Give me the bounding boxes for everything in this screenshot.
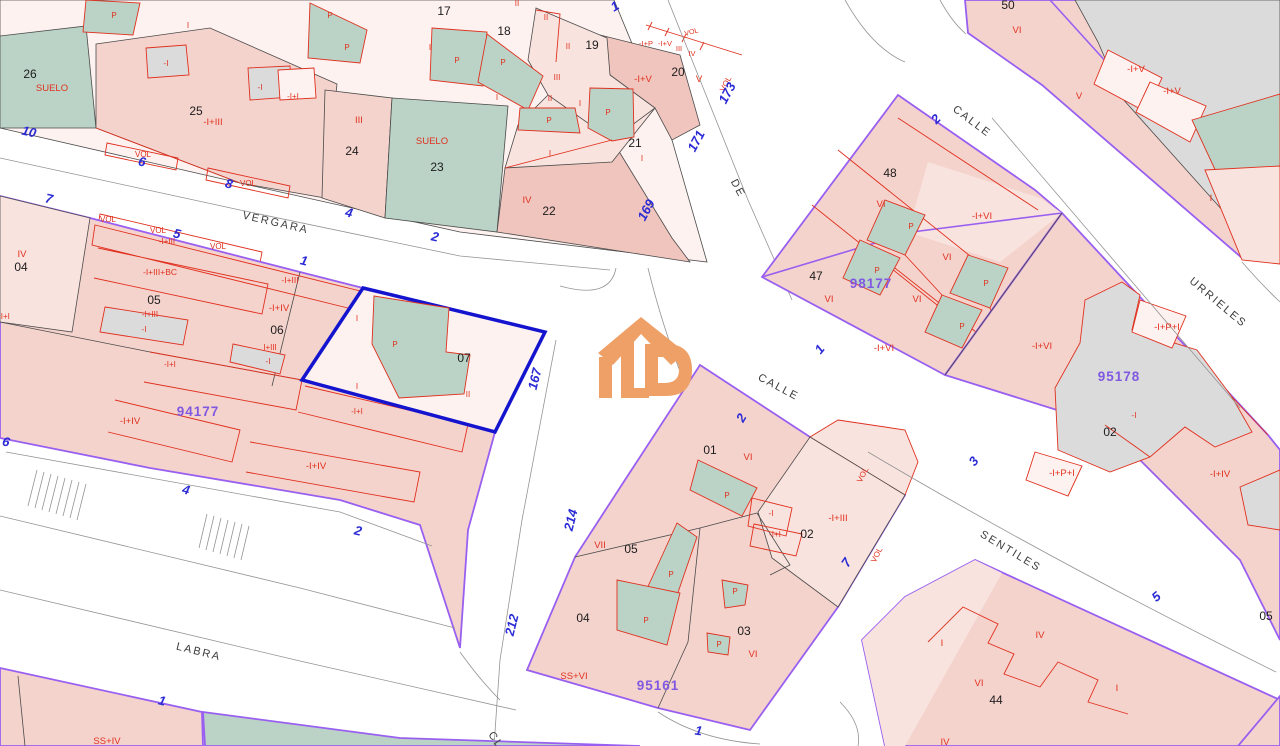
construction-label: -I+P [639,39,653,48]
construction-label: P [392,340,397,349]
construction-label: IV [941,737,951,746]
cadastral-map-viewport[interactable]: SUELO-I-I-I+I-I+IIIIIISUELOIVIPPPIIIIIII… [0,0,1280,746]
construction-label: VI [749,649,758,660]
construction-label: P [732,587,737,596]
construction-label: -I+I [0,312,10,321]
construction-label: I [356,382,358,391]
construction-label: -I+I [769,530,781,539]
construction-label: I [941,638,944,649]
construction-label: -I+III [828,513,847,524]
construction-label: P [716,640,721,649]
block-code-label: 95178 [1098,369,1141,384]
parcel-number-label: 05 [147,293,161,307]
construction-label: VI [975,678,984,689]
construction-label: IV [18,249,28,260]
construction-label: VI [913,294,922,305]
parcel-number-label: 03 [737,624,751,638]
block-code-label: 98177 [850,276,893,291]
construction-label: -I+III [281,275,298,285]
construction-label: I [429,43,431,52]
construction-label: -I [258,83,263,92]
construction-label: II [466,390,470,399]
parcel-number-label: 23 [430,160,444,174]
construction-label: -I+VI [874,343,894,354]
construction-label: V [696,74,703,85]
construction-label: VII [594,540,606,551]
construction-label: -I+IV [269,303,290,314]
construction-label: -I [769,509,774,518]
parcel-number-label: 47 [809,269,823,283]
construction-label: P [454,56,459,65]
construction-label: P [327,11,332,20]
parcel-number-label: 04 [576,611,590,625]
construction-label: II [566,42,570,51]
construction-label: -I+V [1163,86,1181,97]
construction-label: -I+VI [1032,341,1052,352]
parcel-number-label: 06 [270,323,284,337]
construction-label: P [605,108,610,117]
construction-label: P [724,491,729,500]
construction-label: P [668,570,673,579]
construction-label: I [641,154,643,163]
construction-label: SUELO [416,136,448,147]
construction-label: V [1076,91,1083,102]
construction-label: -I+III [203,117,222,128]
construction-label: -I+I [351,407,363,416]
parcel-number-label: 04 [14,260,28,274]
construction-label: I [1116,683,1119,694]
construction-label: -I+I [164,360,176,369]
construction-label: II [544,13,548,22]
construction-label: -I+VI [972,211,992,222]
parcel-26[interactable] [0,26,96,128]
construction-label: P [874,266,879,275]
construction-label: III [355,115,363,126]
construction-label: VOL [210,242,227,251]
construction-label: III [676,44,682,53]
parcel-number-label: 18 [497,24,511,38]
construction-label: -I+III+BC [143,267,177,277]
parcel-number-label: 05 [1259,609,1273,623]
construction-label: VI [825,294,834,305]
construction-label: -I+V [634,74,652,85]
construction-label: -I+IV [306,461,327,472]
construction-label: I [187,21,189,30]
parcel-number-label: 01 [703,443,717,457]
parcel-number-label: 07 [457,351,471,365]
construction-label: I [496,93,498,102]
construction-label: VI [877,199,886,210]
construction-label: SS+IV [93,736,121,746]
construction-label: I [1210,193,1213,204]
parcel-number-label: 25 [189,104,203,118]
block-code-label: 94177 [177,404,220,419]
construction-label: -I+IV [1210,469,1231,480]
construction-label: II [515,0,519,8]
construction-label: VOL [240,179,257,188]
construction-label: -I+V [1127,64,1145,75]
construction-label: I [579,99,581,108]
construction-label: P [908,222,913,231]
construction-label: IV [523,195,533,206]
parcel-number-label: 44 [989,693,1003,707]
construction-label: II [548,94,552,103]
construction-label: -I [164,59,169,68]
parcel-number-label: 50 [1001,0,1015,12]
construction-label: -I [1132,411,1137,420]
construction-label: P [111,11,116,20]
construction-label: -I+IV [120,416,141,427]
construction-label: P [344,43,349,52]
parcel-number-label: 20 [671,65,685,79]
parcel-number-label: 24 [345,144,359,158]
construction-label: P [546,116,551,125]
construction-label: P [983,279,988,288]
parcel-number-label: 05 [624,542,638,556]
parcel-23[interactable] [385,98,508,232]
construction-label: -I [142,325,147,334]
construction-label: III [554,73,561,82]
construction-label: VOL [150,226,167,235]
construction-label: VOL [100,215,117,224]
parcel-number-label: 17 [437,4,451,18]
construction-label: SS+VI [560,671,587,682]
cadastral-map-canvas[interactable]: SUELO-I-I-I+I-I+IIIIIISUELOIVIPPPIIIIIII… [0,0,1280,746]
construction-label: -I+III [142,310,158,319]
parcel-number-label: 02 [800,527,814,541]
construction-label: I+III [263,343,277,352]
construction-label: P [643,616,648,625]
parcel-number-label: 48 [883,166,897,180]
construction-label: -I+P+I [1154,322,1180,333]
construction-label: -I+P+I [1049,468,1075,479]
construction-label: IV [1036,630,1046,641]
parcel-number-label: 19 [585,38,599,52]
construction-label: -I+I [287,92,299,101]
parcel-number-label: 21 [628,136,642,150]
construction-label: -I [266,357,271,366]
construction-label: I [356,314,358,323]
construction-label: P [500,58,505,67]
construction-label: VI [744,452,753,463]
parcel-number-label: 26 [23,67,37,81]
construction-label: -I+V [658,39,672,48]
construction-label: IV [688,49,695,58]
construction-label: VI [1013,25,1022,36]
parcel-number-label: 22 [542,204,556,218]
parcel-number-label: 02 [1103,425,1117,439]
construction-label: SUELO [36,83,68,94]
construction-label: I [549,149,551,158]
block-code-label: 95161 [637,678,680,693]
construction-label: VI [943,252,952,263]
construction-label: P [959,322,964,331]
